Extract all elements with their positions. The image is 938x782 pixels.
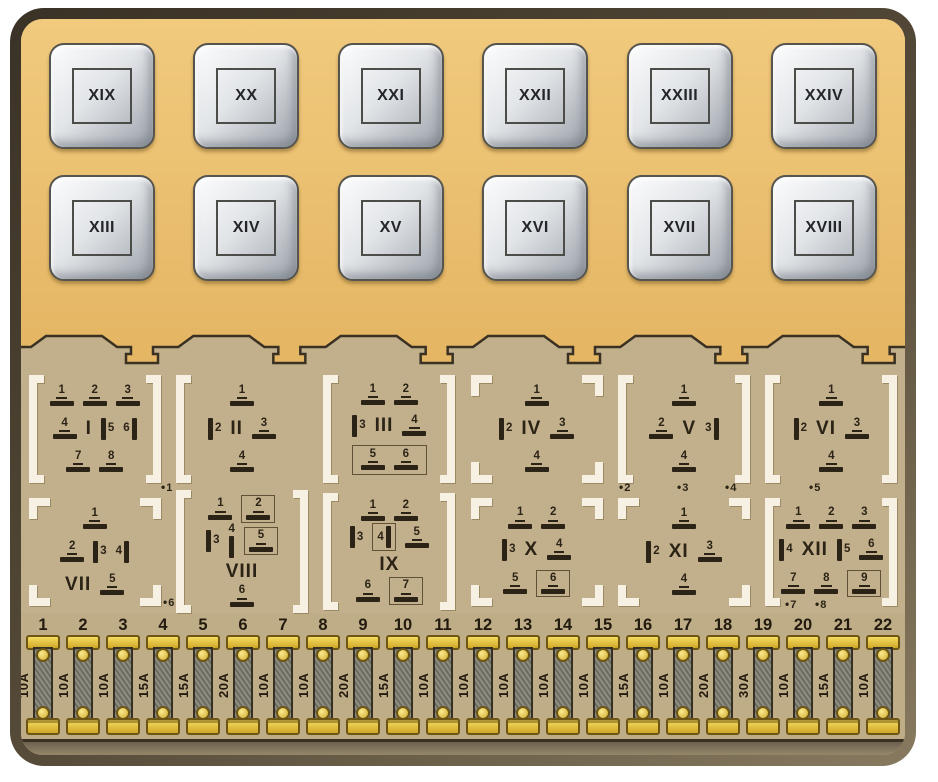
pin-vertical: 3 [705, 418, 718, 440]
connector-iii: 123III456 [323, 375, 455, 483]
pin-number: 5 [107, 574, 117, 589]
pin-marker: 3 [677, 481, 688, 494]
pin-row: 4 [672, 450, 696, 474]
pin-marker-number: 3 [682, 482, 688, 494]
pin-vertical: 3 [93, 541, 106, 563]
pin-horizontal: 3 [116, 385, 140, 407]
pin-row: 1 [525, 384, 549, 408]
fuse-number: 7 [278, 613, 287, 635]
pin-row: 789 [781, 570, 881, 598]
fuse-terminal-top [836, 648, 850, 662]
connector-xi: 12XI34 [618, 498, 750, 606]
fuse-cap-bottom [186, 718, 220, 735]
connector-iv: 12IV34 [471, 375, 603, 483]
fuse-amp-label: 10A [575, 659, 592, 711]
pin-number: 2 [653, 546, 659, 558]
pin-vertical: 2 [499, 418, 512, 440]
corner-bracket-icon [729, 498, 750, 519]
pin-number: 3 [213, 535, 219, 547]
pin-horizontal: 2 [649, 418, 673, 440]
pin-number: 6 [237, 585, 247, 600]
pin-row: 56 [352, 445, 427, 475]
fuse-number: 16 [634, 613, 652, 635]
fuse-number: 9 [358, 613, 367, 635]
corner-bracket-icon [471, 375, 492, 396]
pin-row: 1 [83, 507, 107, 531]
relay-label: XVII [663, 219, 695, 237]
connector-cell: 12V34 [610, 367, 757, 490]
pin-number: 1 [237, 385, 247, 400]
pin-number: 6 [123, 423, 129, 435]
pin-bar [672, 590, 696, 595]
fuse-terminal-top [276, 648, 290, 662]
fuse-terminal-top [356, 648, 370, 662]
pin-number: 3 [122, 385, 132, 400]
fuse-number: 5 [198, 613, 207, 635]
bracket-right-icon [735, 375, 750, 483]
pin-marker: 4 [725, 481, 736, 494]
pin-number: 2 [89, 385, 99, 400]
bracket-right-icon [293, 490, 308, 613]
pin-horizontal: 4 [819, 451, 843, 473]
pin-number: 1 [215, 498, 225, 513]
pin-horizontal: 1 [83, 508, 107, 530]
fuse-amp-label: 10A [295, 659, 312, 711]
pin-horizontal: 1 [672, 385, 696, 407]
pin-bar [819, 524, 843, 529]
fuse-cap-bottom [266, 718, 300, 735]
pin-bar [230, 602, 254, 607]
pin-horizontal: 7 [66, 451, 90, 473]
fuse-terminal-top [316, 648, 330, 662]
pin-number: 1 [826, 385, 836, 400]
fuse-cap-bottom [746, 718, 780, 735]
pin-bar [541, 589, 565, 594]
pin-horizontal: 3 [852, 507, 876, 529]
pin-row: 12 [208, 495, 275, 523]
pin-horizontal: 6 [230, 585, 254, 607]
fuse-terminal-top [76, 648, 90, 662]
pin-bar [230, 467, 254, 472]
fuse-number: 20 [794, 613, 812, 635]
pin-number: 4 [531, 451, 541, 466]
pin-bar [550, 434, 574, 439]
pin-bar [50, 401, 74, 406]
pin-horizontal: 5 [361, 449, 385, 471]
fuse-amp-label: 20A [215, 659, 232, 711]
pin-number: 3 [704, 541, 714, 556]
pin-number: 3 [509, 544, 515, 556]
pin-horizontal: 3 [698, 541, 722, 563]
pin-number: 8 [821, 573, 831, 588]
connector-ix: 12345IX67 [323, 493, 455, 610]
bracket-right-icon [146, 375, 161, 483]
fuse-amp-label: 10A [855, 659, 872, 711]
pin-number: 6 [401, 449, 411, 464]
pin-bar [649, 434, 673, 439]
fuse-number: 18 [714, 613, 732, 635]
pin-row: 4 [525, 450, 549, 474]
pin-bar [402, 431, 426, 436]
connector-section: 1234I567812II34123III45612IV3412V3412VI3… [21, 367, 905, 613]
fuse-cap-bottom [786, 718, 820, 735]
bracket-left-icon [765, 498, 780, 606]
pin-bar [229, 536, 234, 558]
pin-horizontal: 2 [241, 495, 275, 523]
relay-xx: XX [193, 43, 299, 149]
pin-number: 2 [401, 384, 411, 399]
corner-bracket-icon [471, 498, 492, 519]
pin-horizontal: 2 [541, 507, 565, 529]
pin-bar [100, 590, 124, 595]
pin-bar [794, 418, 799, 440]
pin-bar [819, 401, 843, 406]
pin-vertical: 5 [101, 418, 114, 440]
pin-row: 234 [60, 540, 129, 564]
pin-vertical: 3 [502, 539, 515, 561]
pin-number: 4 [409, 415, 419, 430]
corner-bracket-icon [618, 585, 639, 606]
pin-vertical: 4 [372, 523, 395, 551]
corner-bracket-icon [582, 462, 603, 483]
relay-label-box: XIX [72, 68, 132, 124]
fuse-terminal-top [156, 648, 170, 662]
pin-number: 6 [363, 580, 373, 595]
panel-inner: XIXXXXXIXXIIXXIIIXXIV XIIIXIVXVXVIXVIIXV… [21, 19, 905, 755]
fuse-cap-bottom [586, 718, 620, 735]
pin-marker-number: 8 [820, 599, 826, 611]
relay-label-box: XX [216, 68, 276, 124]
pin-bar [386, 526, 391, 548]
pin-horizontal: 2 [394, 384, 418, 406]
connector-cell: 1234XII56789 [758, 490, 905, 613]
connector-vii: 1234VII5 [29, 498, 161, 606]
fuse-number: 2 [78, 613, 87, 635]
pin-row: 56 [503, 570, 570, 598]
pin-vertical: 3 [352, 415, 365, 437]
relay-label: XXI [377, 87, 404, 105]
pin-number: 8 [106, 451, 116, 466]
connector-vi: 12VI34 [765, 375, 897, 483]
pin-number: 4 [237, 451, 247, 466]
pin-row: 123 [786, 506, 876, 530]
pin-bar [508, 524, 532, 529]
pin-row: 78 [66, 450, 123, 474]
pin-row: 345 [350, 523, 429, 551]
fuse-box-diagram: XIXXXXXIXXIIXXIIIXXIV XIIIXIVXVXVIXVIIXV… [0, 0, 938, 782]
pin-row: 1 [230, 384, 254, 408]
pin-horizontal: 4 [525, 451, 549, 473]
pin-bar [206, 530, 211, 552]
pin-horizontal: 1 [819, 385, 843, 407]
connector-label: XII [802, 540, 828, 559]
fuse-cap-bottom [66, 718, 100, 735]
fuse-cap-bottom [626, 718, 660, 735]
pin-row: 4XII56 [779, 538, 883, 562]
pin-horizontal: 4 [672, 451, 696, 473]
pin-number: 2 [215, 423, 221, 435]
pin-number: 4 [786, 544, 792, 556]
relay-label-box: XVIII [794, 200, 854, 256]
pin-vertical: 3 [206, 530, 219, 552]
fuse-terminal-top [196, 648, 210, 662]
pin-bar [547, 555, 571, 560]
pin-number: 2 [401, 500, 411, 515]
pin-bar [394, 465, 418, 470]
pin-horizontal: 4 [672, 574, 696, 596]
fuse-amp-label: 10A [21, 659, 32, 711]
pin-bar [132, 418, 137, 440]
pin-horizontal: 7 [781, 573, 805, 595]
pin-number: 4 [377, 532, 383, 544]
pin-horizontal: 1 [508, 507, 532, 529]
fuse-number: 19 [754, 613, 772, 635]
relay-label-box: XV [361, 200, 421, 256]
fuse-cap-bottom [306, 718, 340, 735]
fuse-terminal-top [436, 648, 450, 662]
relay-label: XX [235, 87, 257, 105]
pin-horizontal: 3 [252, 418, 276, 440]
fuse-amp-label: 15A [615, 659, 632, 711]
relay-xv: XV [338, 175, 444, 281]
bracket-left-icon [323, 375, 338, 483]
fuse-terminal-top [476, 648, 490, 662]
fuse-amp-label: 10A [255, 659, 272, 711]
pin-bar [60, 557, 84, 562]
pin-number: 4 [554, 539, 564, 554]
fuse-cap-bottom [826, 718, 860, 735]
fuse-cap-bottom [706, 718, 740, 735]
relay-label: XXIII [661, 87, 698, 105]
pin-horizontal: 4 [402, 415, 426, 437]
pin-bar [525, 401, 549, 406]
fuse-cap-bottom [146, 718, 180, 735]
pin-horizontal: 5 [503, 573, 527, 595]
fuse-number: 14 [554, 613, 572, 635]
fuse-cap-bottom [506, 718, 540, 735]
pin-row: 2II3 [208, 417, 276, 441]
pin-horizontal: 4 [547, 539, 571, 561]
pin-vertical: 5 [837, 539, 850, 561]
corner-bracket-icon [582, 585, 603, 606]
connector-label: I [86, 419, 92, 438]
bracket-left-icon [323, 493, 338, 610]
fuse-graphic: 10A [863, 635, 903, 735]
relay-label-box: XXIII [650, 68, 710, 124]
pin-number: 3 [259, 418, 269, 433]
fuse-amp-label: 10A [775, 659, 792, 711]
relay-label-box: XXII [505, 68, 565, 124]
pin-bar [499, 418, 504, 440]
pin-vertical: 3 [350, 526, 363, 548]
connector-cell: 12II34 [168, 367, 315, 490]
fuse-amp-label: 10A [95, 659, 112, 711]
corner-bracket-icon [582, 498, 603, 519]
pin-vertical: 4 [116, 541, 129, 563]
pin-bar [781, 589, 805, 594]
connector-cell: 12345VIII6 [168, 490, 315, 613]
fuse-amp-label: 10A [55, 659, 72, 711]
relay-xxi: XXI [338, 43, 444, 149]
fuse-cap-bottom [346, 718, 380, 735]
pin-row: IX [379, 552, 399, 576]
relay-xxiii: XXIII [627, 43, 733, 149]
corner-bracket-icon [140, 585, 161, 606]
pin-marker-number: 1 [166, 482, 172, 494]
pin-marker: 2 [619, 481, 630, 494]
connector-cell: 1234VII5 [21, 490, 168, 613]
fuse-box-panel: XIXXXXXIXXIIXXIIIXXIV XIIIXIVXVXVIXVIIXV… [10, 8, 916, 766]
pin-vertical: 4 [228, 524, 234, 559]
pin-bar [786, 524, 810, 529]
fuse-terminal-top [636, 648, 650, 662]
pin-bar [845, 434, 869, 439]
fuse-terminal-top [716, 648, 730, 662]
pin-number: 1 [793, 507, 803, 522]
pin-bar [541, 524, 565, 529]
pin-bar [672, 467, 696, 472]
pin-number: 4 [679, 451, 689, 466]
fuse-number: 13 [514, 613, 532, 635]
pin-number: 1 [531, 385, 541, 400]
bracket-left-icon [618, 375, 633, 483]
fuse-number: 11 [434, 613, 451, 635]
relay-label: XVIII [805, 219, 842, 237]
fuse-number: 21 [834, 613, 852, 635]
pin-marker: 7 [785, 598, 796, 611]
pin-row: 67 [356, 577, 423, 605]
relay-row-top: XIXXXXXIXXIIXXIIIXXIV [21, 43, 905, 149]
section-divider [21, 331, 905, 367]
pin-horizontal: 1 [361, 384, 385, 406]
pin-row: 2IV3 [499, 417, 574, 441]
pin-marker-number: 2 [624, 482, 630, 494]
fuse-terminal-top [876, 648, 890, 662]
pin-row: 3III4 [352, 414, 426, 438]
pin-horizontal: 8 [99, 451, 123, 473]
pin-bar [124, 541, 129, 563]
pin-bar [99, 467, 123, 472]
pin-number: 7 [788, 573, 798, 588]
pin-horizontal: 6 [859, 539, 883, 561]
connector-cell: 1234I5678 [21, 367, 168, 490]
fuse-number: 6 [238, 613, 247, 635]
fuse-terminal-top [676, 648, 690, 662]
pin-bar [352, 415, 357, 437]
pin-row: VIII [226, 559, 259, 583]
pin-vertical: 6 [123, 418, 136, 440]
pin-marker: 6 [163, 596, 174, 609]
bracket-right-icon [882, 498, 897, 606]
bracket-left-icon [765, 375, 780, 483]
pin-bar [230, 401, 254, 406]
pin-horizontal: 4 [230, 451, 254, 473]
pin-bar [819, 467, 843, 472]
fuse-cap-bottom [226, 718, 260, 735]
relay-row-bottom: XIIIXIVXVXVIXVIIXVIII [21, 175, 905, 281]
pin-row: 4 [672, 573, 696, 597]
pin-horizontal: 1 [786, 507, 810, 529]
relay-label: XIII [89, 219, 115, 237]
pin-marker-number: 7 [790, 599, 796, 611]
pin-marker: 1 [161, 481, 172, 494]
bracket-left-icon [176, 375, 191, 483]
pin-bar [66, 467, 90, 472]
pin-horizontal: 6 [356, 580, 380, 602]
fuse-number: 4 [158, 613, 167, 635]
pin-horizontal: 1 [361, 500, 385, 522]
relay-label-box: XVI [505, 200, 565, 256]
relay-xix: XIX [49, 43, 155, 149]
corner-bracket-icon [618, 498, 639, 519]
pin-row: 3X4 [502, 538, 571, 562]
corner-bracket-icon [471, 462, 492, 483]
pin-bar [698, 557, 722, 562]
pin-bar [208, 418, 213, 440]
pin-bar [208, 515, 232, 520]
pin-bar [350, 526, 355, 548]
fuse-number: 8 [318, 613, 327, 635]
pin-horizontal: 5 [100, 574, 124, 596]
pin-bar [525, 467, 549, 472]
pin-bar [394, 597, 418, 602]
corner-bracket-icon [29, 585, 50, 606]
pin-row: 4I56 [53, 417, 137, 441]
pin-number: 4 [228, 524, 234, 536]
pin-vertical: 2 [794, 418, 807, 440]
fuse-terminal-top [796, 648, 810, 662]
fuse-terminal-top [116, 648, 130, 662]
pin-bar [859, 555, 883, 560]
pin-number: 3 [705, 423, 711, 435]
pin-number: 3 [557, 418, 567, 433]
fuse-cap-bottom [106, 718, 140, 735]
pin-row: 12 [361, 498, 418, 522]
connector-cell: 123III456 [316, 367, 463, 490]
fuse-amp-label: 30A [735, 659, 752, 711]
fuse-amp-label: 15A [175, 659, 192, 711]
pin-row: 6 [230, 584, 254, 608]
relay-section: XIXXXXXIXXIIXXIIIXXIV XIIIXIVXVXVIXVIIXV… [21, 19, 905, 331]
relay-xviii: XVIII [771, 175, 877, 281]
fuse-amp-label: 15A [135, 659, 152, 711]
pin-row: VII5 [65, 573, 124, 597]
pin-marker-number: 5 [814, 482, 820, 494]
pin-number: 5 [368, 449, 378, 464]
pin-bar [116, 401, 140, 406]
pin-row: 4 [230, 450, 254, 474]
pin-number: 1 [679, 385, 689, 400]
pin-number: 1 [368, 500, 378, 515]
connector-viii: 12345VIII6 [176, 490, 308, 613]
fuse-amp-label: 20A [695, 659, 712, 711]
corner-bracket-icon [140, 498, 161, 519]
connector-label: IV [521, 419, 541, 438]
connector-cell: 12IV34 [463, 367, 610, 490]
fuse-amp-label: 15A [375, 659, 392, 711]
bracket-right-icon [440, 375, 455, 483]
connector-label: IX [379, 555, 399, 574]
pin-horizontal: 1 [50, 385, 74, 407]
connector-cell: 12VI34 [758, 367, 905, 490]
relay-xxiv: XXIV [771, 43, 877, 149]
fuse-row: 110A210A310A415A515A620A710A810A920A1015… [21, 613, 905, 739]
pin-number: 3 [359, 420, 365, 432]
pin-number: 3 [852, 418, 862, 433]
fuse-number: 10 [394, 613, 412, 635]
fuse-number: 22 [874, 613, 892, 635]
pin-number: 5 [844, 544, 850, 556]
